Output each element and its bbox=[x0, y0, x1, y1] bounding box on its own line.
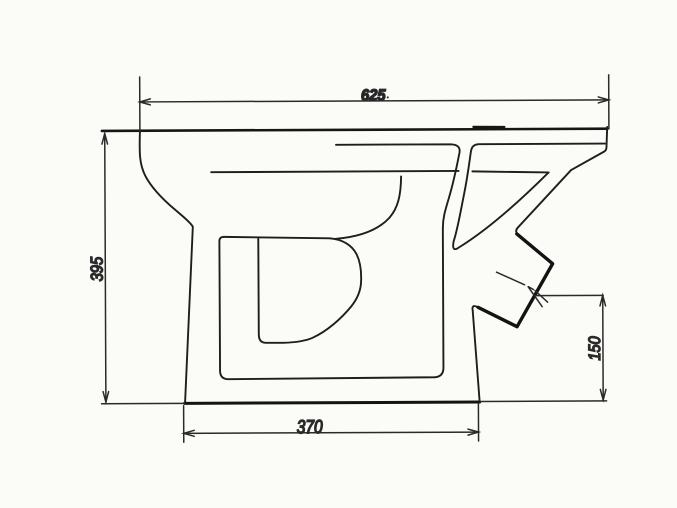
svg-text:395: 395 bbox=[89, 257, 107, 282]
svg-text:625: 625 bbox=[361, 87, 386, 105]
svg-text:150: 150 bbox=[586, 336, 604, 361]
svg-text:370: 370 bbox=[297, 416, 323, 438]
